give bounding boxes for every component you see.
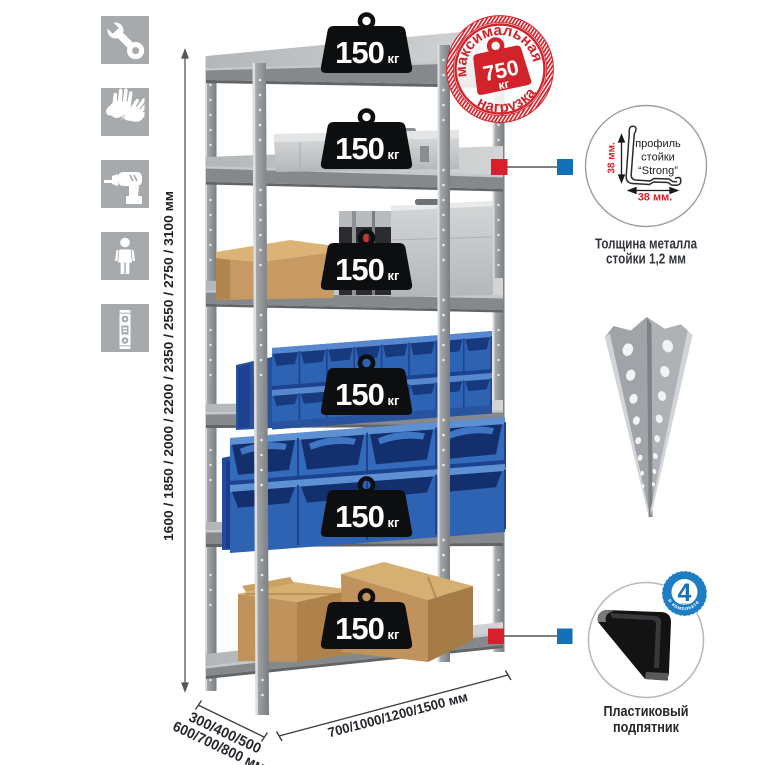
svg-text:стойки: стойки: [641, 152, 675, 164]
svg-text:стойки 1,2 мм: стойки 1,2 мм: [606, 252, 686, 268]
svg-text:150: 150: [335, 252, 384, 287]
svg-text:кг: кг: [388, 51, 401, 66]
svg-text:кг: кг: [388, 627, 401, 642]
svg-text:1600 / 1850 / 2000 / 2200 / 23: 1600 / 1850 / 2000 / 2200 / 2350 / 2550 …: [161, 191, 176, 541]
svg-text:Пластиковый: Пластиковый: [604, 704, 689, 720]
svg-text:150: 150: [335, 377, 384, 412]
svg-text:кг: кг: [388, 268, 401, 283]
svg-text:150: 150: [335, 131, 384, 166]
svg-text:150: 150: [335, 611, 384, 646]
svg-text:700/1000/1200/1500 мм: 700/1000/1200/1500 мм: [326, 689, 469, 740]
svg-text:Толщина металла: Толщина металла: [595, 237, 698, 253]
svg-text:150: 150: [335, 499, 384, 534]
svg-text:150: 150: [335, 35, 384, 70]
svg-text:кг: кг: [388, 393, 401, 408]
svg-text:кг: кг: [388, 147, 401, 162]
svg-text:профиль: профиль: [635, 138, 681, 150]
svg-text:подпятник: подпятник: [613, 720, 680, 736]
svg-text:38 мм.: 38 мм.: [607, 142, 618, 174]
svg-text:“Strong”: “Strong”: [638, 165, 678, 177]
svg-text:кг: кг: [388, 515, 401, 530]
svg-text:38 мм.: 38 мм.: [638, 192, 673, 204]
